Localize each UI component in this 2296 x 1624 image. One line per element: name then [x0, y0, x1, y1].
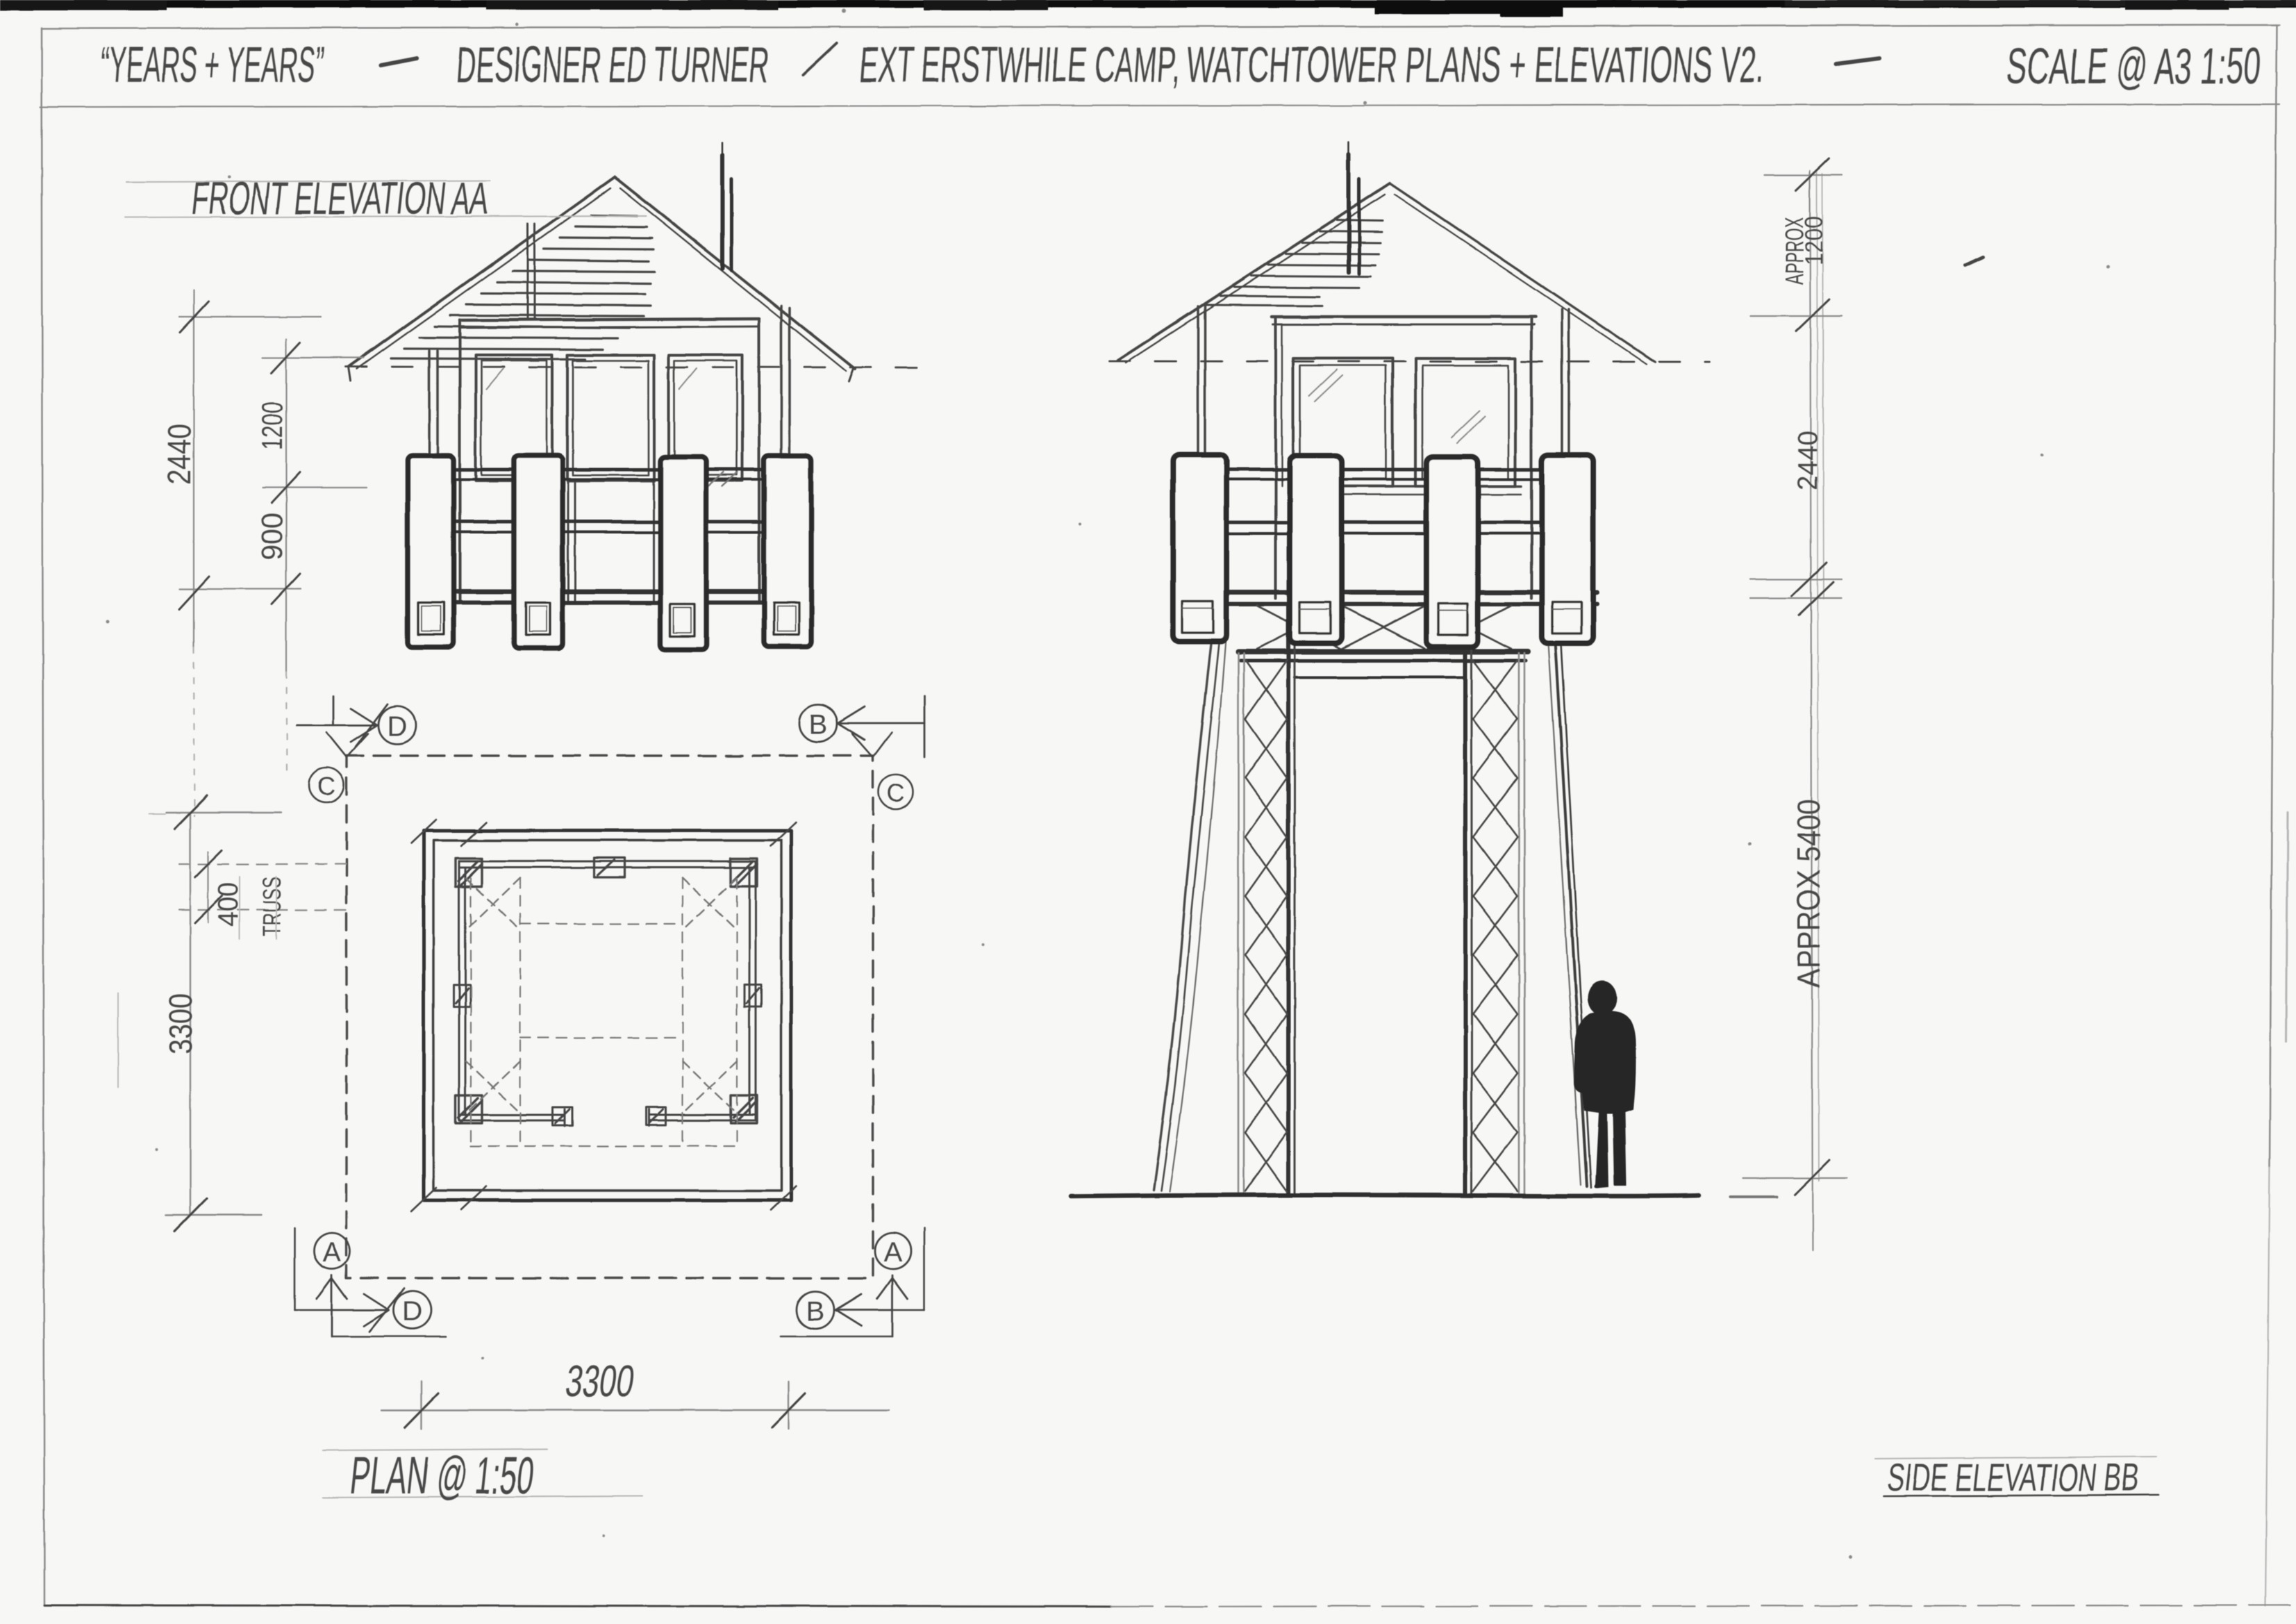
svg-text:900: 900: [256, 513, 288, 560]
svg-text:3300: 3300: [563, 1356, 638, 1406]
svg-text:D: D: [403, 1296, 423, 1327]
svg-text:C: C: [317, 772, 335, 800]
svg-text:1200: 1200: [1799, 215, 1828, 265]
svg-text:2440: 2440: [161, 424, 197, 485]
svg-text:“YEARS + YEARS”: “YEARS + YEARS”: [99, 38, 326, 93]
svg-text:FRONT ELEVATION AA: FRONT ELEVATION AA: [189, 173, 492, 224]
svg-text:WATCHTOWER PLANS + ELEVATIONS: WATCHTOWER PLANS + ELEVATIONS V2.: [1185, 38, 1767, 93]
svg-text:SCALE @ A3 1:50: SCALE @ A3 1:50: [2004, 39, 2263, 94]
svg-text:B: B: [809, 709, 828, 740]
svg-text:DESIGNER ED TURNER: DESIGNER ED TURNER: [455, 38, 772, 93]
svg-text:SIDE ELEVATION BB: SIDE ELEVATION BB: [1886, 1455, 2142, 1499]
svg-text:EXT ERSTWHILE CAMP,: EXT ERSTWHILE CAMP,: [858, 38, 1183, 93]
svg-text:A: A: [884, 1237, 903, 1268]
svg-text:1200: 1200: [256, 401, 288, 450]
svg-text:3300: 3300: [163, 993, 199, 1054]
svg-text:TRUSS: TRUSS: [258, 877, 286, 936]
svg-text:A: A: [323, 1237, 342, 1268]
svg-text:2440: 2440: [1792, 431, 1823, 490]
svg-text:APPROX 5400: APPROX 5400: [1790, 799, 1827, 988]
svg-text:C: C: [887, 779, 905, 807]
svg-text:PLAN @ 1:50: PLAN @ 1:50: [347, 1446, 537, 1505]
svg-text:B: B: [806, 1296, 825, 1327]
svg-text:D: D: [388, 711, 408, 742]
